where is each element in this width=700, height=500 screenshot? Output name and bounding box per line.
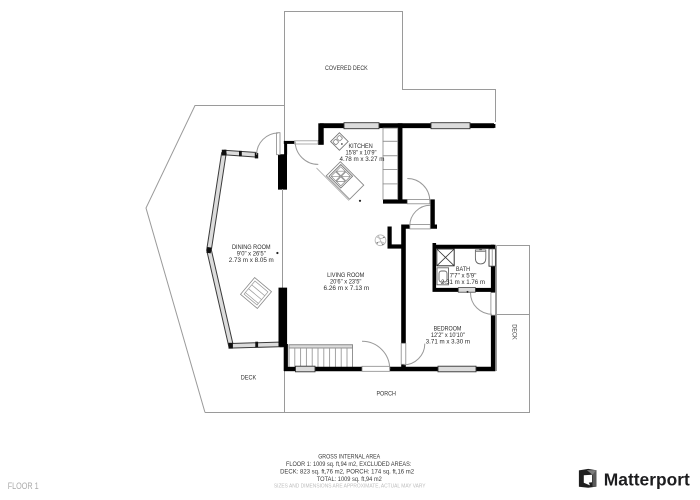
- svg-text:COVERED DECK: COVERED DECK: [325, 65, 368, 72]
- svg-text:GROSS INTERNAL AREA: GROSS INTERNAL AREA: [318, 453, 381, 460]
- svg-text:SIZES AND DIMENSIONS ARE APPRO: SIZES AND DIMENSIONS ARE APPROXIMATE, AC…: [274, 484, 426, 490]
- svg-text:20'6" x 23'5": 20'6" x 23'5": [330, 279, 362, 285]
- svg-text:FLOOR 1: 1009 sq. ft,94 m2, EX: FLOOR 1: 1009 sq. ft,94 m2, EXCLUDED ARE…: [286, 461, 412, 468]
- svg-text:4.78 m x 3.27 m: 4.78 m x 3.27 m: [340, 157, 385, 163]
- svg-text:PORCH: PORCH: [376, 391, 396, 398]
- svg-text:12'2" x 10'10": 12'2" x 10'10": [431, 333, 465, 339]
- svg-text:TOTAL: 1009 sq. ft,94 m2: TOTAL: 1009 sq. ft,94 m2: [317, 476, 383, 483]
- svg-text:2.73 m x 8.05 m: 2.73 m x 8.05 m: [229, 258, 274, 264]
- svg-text:BATH: BATH: [456, 266, 470, 273]
- svg-text:Matterport: Matterport: [604, 469, 690, 489]
- svg-text:BEDROOM: BEDROOM: [434, 326, 462, 333]
- svg-text:FLOOR 1: FLOOR 1: [8, 481, 39, 491]
- svg-text:3.71 m x 3.30 m: 3.71 m x 3.30 m: [426, 339, 470, 345]
- svg-text:LIVING ROOM: LIVING ROOM: [327, 272, 364, 279]
- svg-text:6.26 m x 7.13 m: 6.26 m x 7.13 m: [324, 286, 370, 292]
- svg-text:15'8" x 10'9": 15'8" x 10'9": [346, 150, 377, 156]
- svg-text:DECK: DECK: [241, 375, 257, 382]
- svg-text:DECK: 823 sq. ft,76 m2, PORCH:: DECK: 823 sq. ft,76 m2, PORCH: 174 sq. f…: [280, 469, 415, 476]
- svg-text:9'0" x 26'5": 9'0" x 26'5": [237, 251, 266, 257]
- svg-text:DINING ROOM: DINING ROOM: [232, 244, 271, 251]
- svg-text:KITCHEN: KITCHEN: [349, 143, 373, 150]
- svg-text:DECK: DECK: [511, 324, 518, 340]
- svg-text:2.31 m x 1.76 m: 2.31 m x 1.76 m: [441, 280, 485, 286]
- svg-text:7'7" x 5'9": 7'7" x 5'9": [450, 274, 477, 280]
